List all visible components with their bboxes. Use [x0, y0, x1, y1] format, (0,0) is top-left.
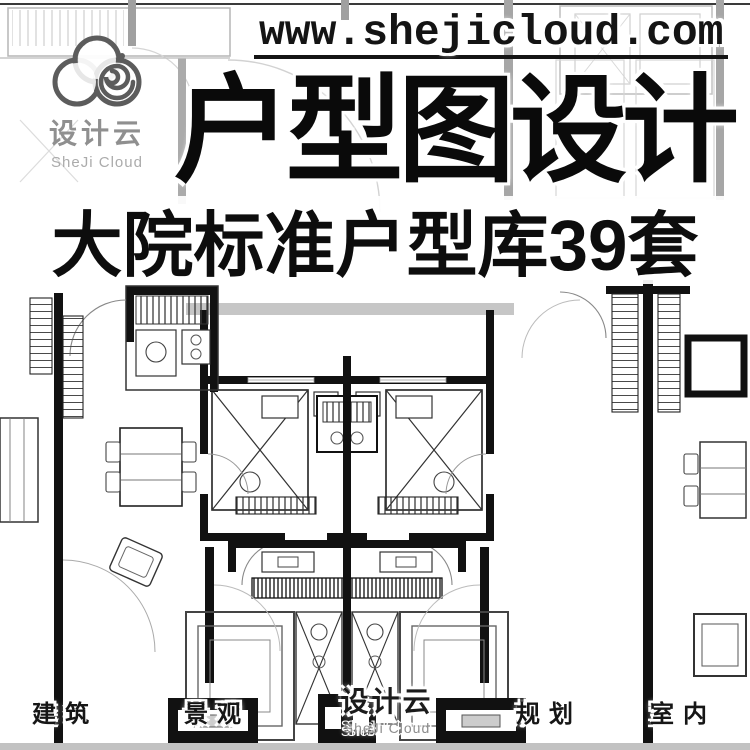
plan-far-right: [522, 280, 746, 744]
brand-name-en: SheJi Cloud: [18, 154, 176, 171]
brand-name-zh: 设计云: [18, 112, 176, 152]
footer-brand: 设计云 SheJi Cloud: [322, 680, 452, 736]
subtitle-band: 大院标准户型库39套: [0, 196, 750, 284]
page-subtitle: 大院标准户型库39套: [52, 189, 699, 291]
website-url: www.shejicloud.com: [254, 10, 728, 59]
footer-category-interior: 室内: [650, 694, 716, 729]
footer-brand-zh: 设计云: [322, 680, 452, 720]
brand-logo: 设计云 SheJi Cloud: [18, 30, 176, 171]
footer-category-landscape: 景观: [184, 694, 250, 729]
plan-main: [0, 280, 746, 745]
cloud-spiral-icon: [45, 30, 149, 114]
footer-category-planning: 规划: [516, 694, 582, 729]
page-title: 户型图设计: [174, 70, 734, 192]
bottom-bar: [0, 743, 750, 750]
poster: www.shejicloud.com 设计云 SheJi Cloud 户型图设计…: [0, 0, 750, 750]
footer-brand-en: SheJi Cloud: [322, 720, 452, 736]
footer-category-architecture: 建筑: [32, 694, 98, 729]
